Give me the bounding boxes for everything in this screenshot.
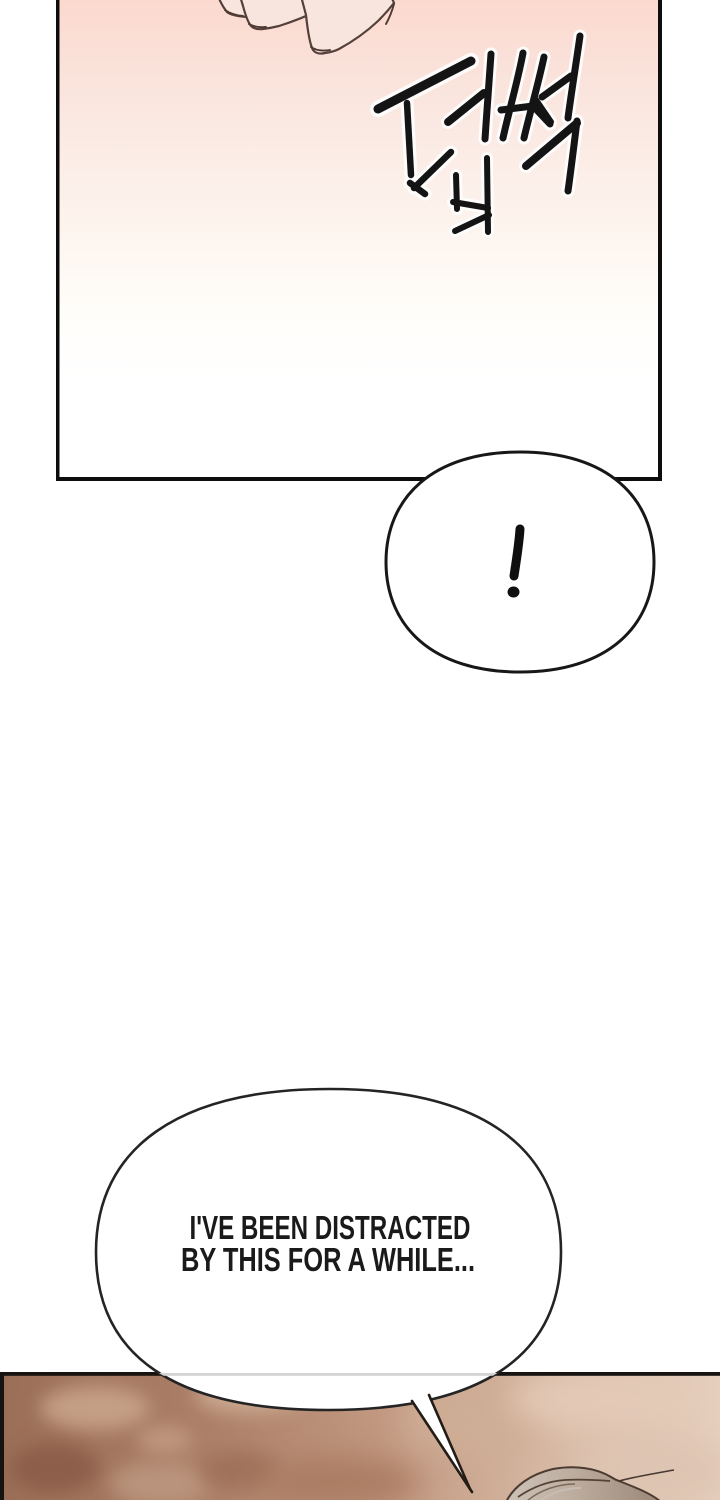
svg-text:BY THIS FOR A WHILE...: BY THIS FOR A WHILE... [181, 1241, 475, 1278]
